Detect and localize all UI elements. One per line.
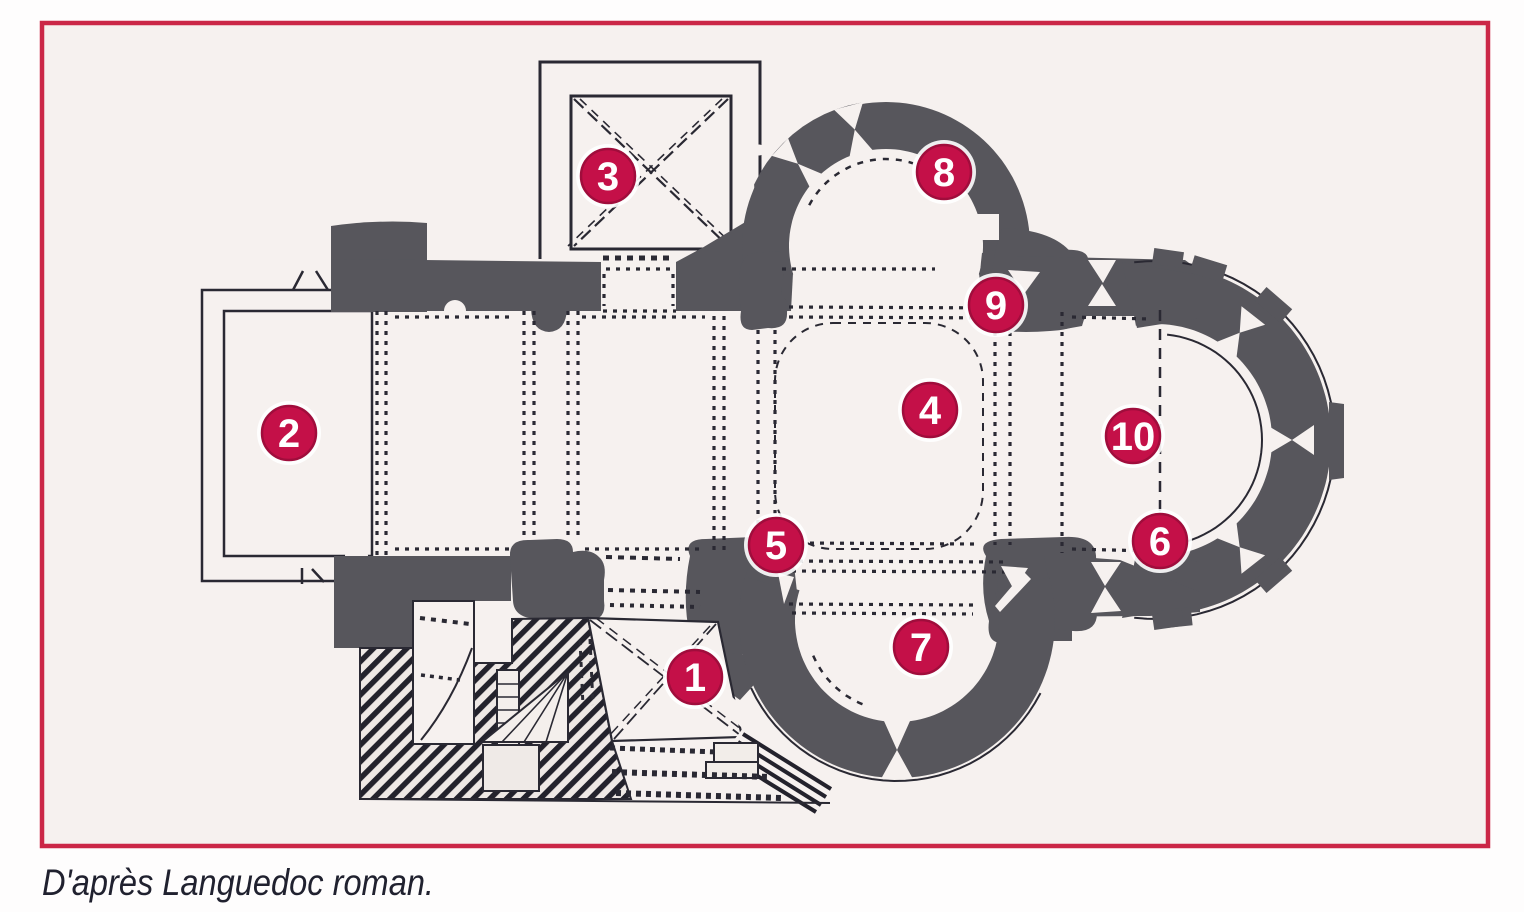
svg-text:10: 10 [1111,415,1156,459]
svg-text:4: 4 [919,389,942,433]
svg-text:2: 2 [278,412,300,456]
svg-text:1: 1 [684,656,706,700]
svg-text:5: 5 [765,524,787,568]
svg-text:8: 8 [933,151,955,195]
svg-text:3: 3 [597,155,619,199]
svg-text:D'après Languedoc roman.: D'après Languedoc roman. [42,862,434,903]
svg-text:7: 7 [910,626,932,670]
svg-text:6: 6 [1149,520,1171,564]
svg-text:9: 9 [985,284,1007,328]
